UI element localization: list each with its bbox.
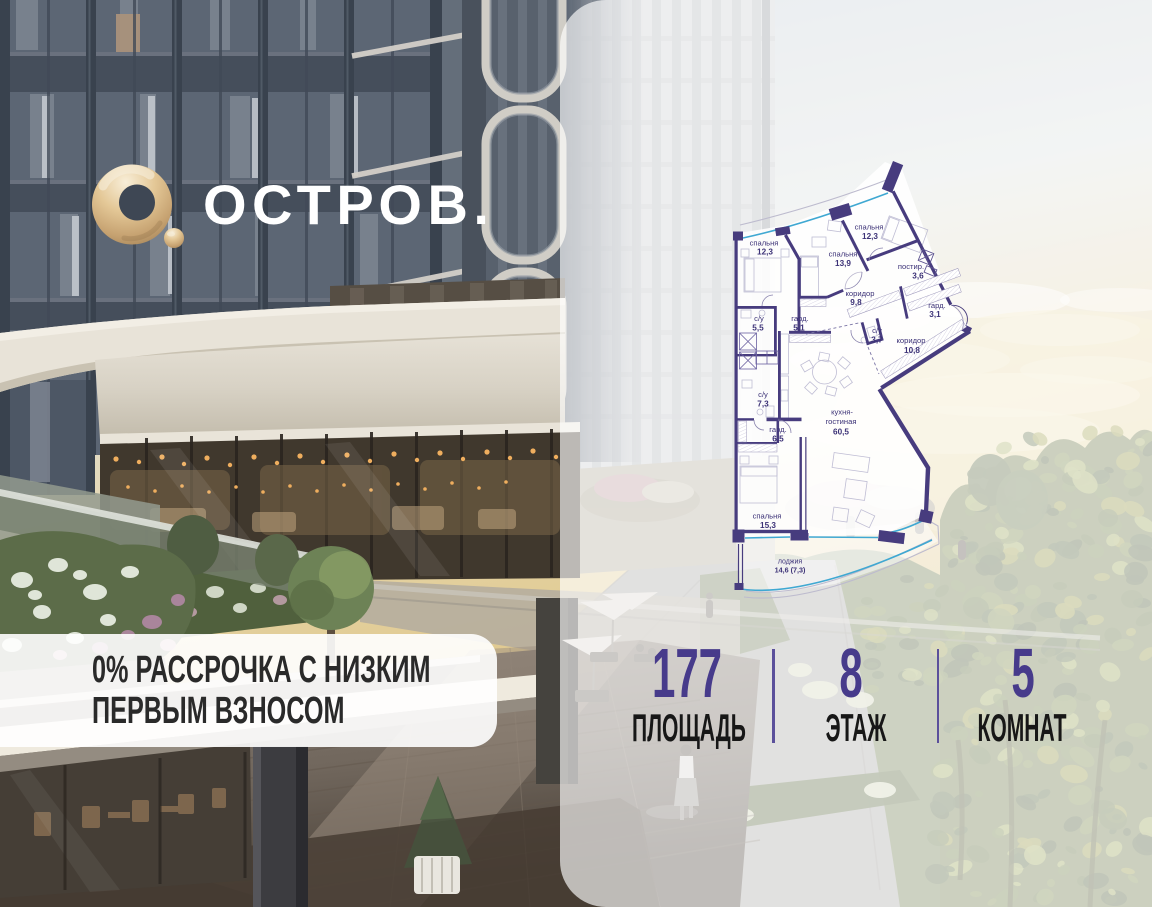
svg-text:гостиная: гостиная xyxy=(826,417,857,426)
svg-text:спальня: спальня xyxy=(829,250,858,259)
svg-text:6,5: 6,5 xyxy=(772,435,784,444)
svg-text:3,7: 3,7 xyxy=(871,336,883,345)
svg-text:с/у: с/у xyxy=(758,390,768,399)
svg-text:12,3: 12,3 xyxy=(757,248,773,257)
svg-text:спальня: спальня xyxy=(855,223,884,232)
svg-text:15,3: 15,3 xyxy=(760,521,776,530)
svg-text:гард.: гард. xyxy=(928,301,945,310)
svg-text:3,1: 3,1 xyxy=(929,310,941,319)
svg-text:спальня: спальня xyxy=(750,239,779,248)
svg-text:гард.: гард. xyxy=(791,314,808,323)
svg-text:13,9: 13,9 xyxy=(835,259,851,268)
svg-text:12,3: 12,3 xyxy=(862,232,878,241)
svg-text:спальня: спальня xyxy=(753,512,782,521)
svg-text:14,6 (7,3): 14,6 (7,3) xyxy=(775,566,806,575)
svg-text:гард.: гард. xyxy=(769,425,786,434)
svg-text:кухня-: кухня- xyxy=(831,408,853,417)
svg-text:с/у: с/у xyxy=(754,314,764,323)
svg-text:коридор: коридор xyxy=(897,336,926,345)
svg-text:60,5: 60,5 xyxy=(833,428,849,437)
svg-text:5,1: 5,1 xyxy=(793,324,805,333)
svg-text:коридор: коридор xyxy=(846,289,875,298)
svg-text:7,3: 7,3 xyxy=(757,400,769,409)
svg-text:5,5: 5,5 xyxy=(752,324,764,333)
svg-text:10,8: 10,8 xyxy=(904,346,920,355)
svg-text:3,6: 3,6 xyxy=(912,272,924,281)
svg-text:с/у: с/у xyxy=(872,326,882,335)
svg-text:постир.: постир. xyxy=(898,262,924,271)
svg-text:9,8: 9,8 xyxy=(850,298,862,307)
